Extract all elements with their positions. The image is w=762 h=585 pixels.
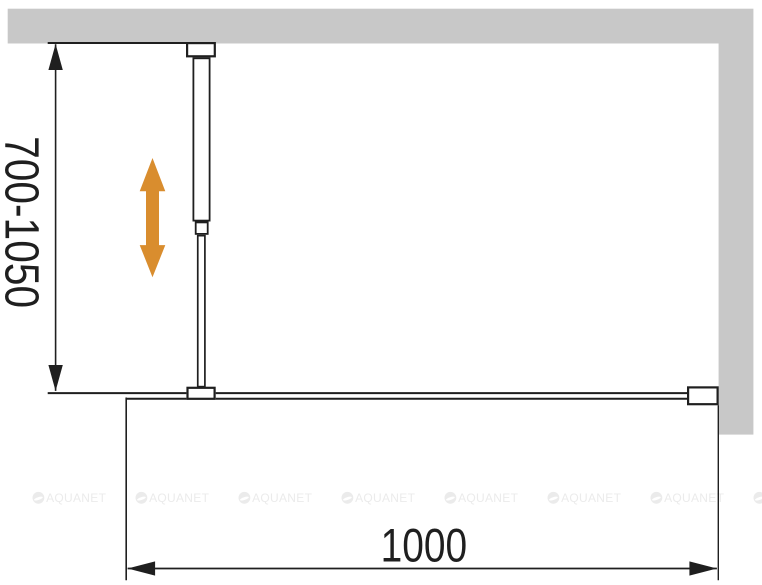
- svg-text:AQUANET: AQUANET: [561, 491, 621, 505]
- svg-text:AQUANET: AQUANET: [252, 491, 312, 505]
- svg-text:AQUANET: AQUANET: [149, 491, 209, 505]
- svg-text:1000: 1000: [381, 519, 468, 572]
- svg-text:700-1050: 700-1050: [0, 136, 47, 308]
- svg-text:AQUANET: AQUANET: [355, 491, 415, 505]
- svg-text:AQUANET: AQUANET: [46, 491, 106, 505]
- svg-text:AQUANET: AQUANET: [664, 491, 724, 505]
- svg-text:AQUANET: AQUANET: [458, 491, 518, 505]
